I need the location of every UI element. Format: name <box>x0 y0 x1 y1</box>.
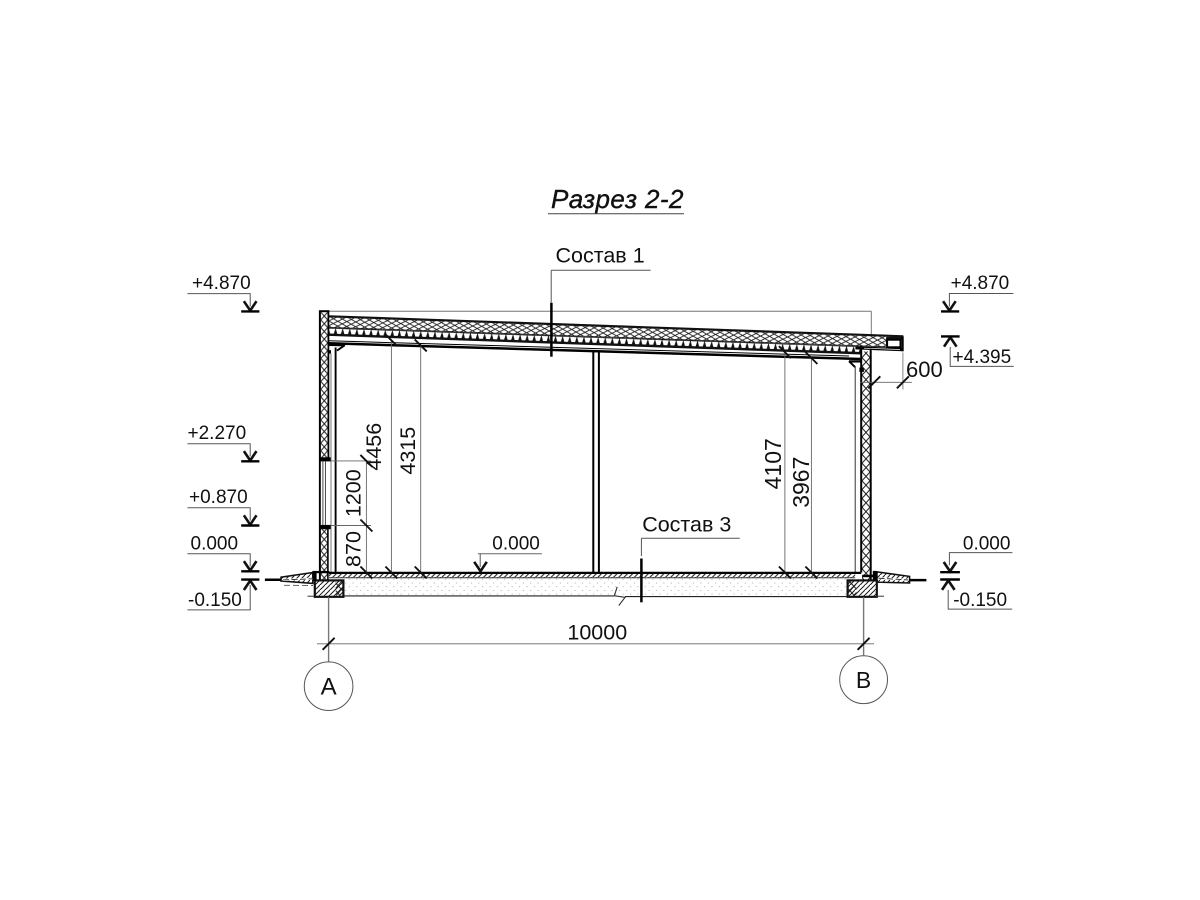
svg-text:Разрез 2-2: Разрез 2-2 <box>551 184 684 214</box>
svg-text:Состав 1: Состав 1 <box>556 244 645 268</box>
svg-text:1200: 1200 <box>341 469 365 517</box>
svg-text:+4.870: +4.870 <box>192 273 251 294</box>
svg-text:+4.395: +4.395 <box>953 347 1012 368</box>
svg-text:600: 600 <box>906 357 943 382</box>
svg-text:В: В <box>856 667 871 693</box>
svg-text:4456: 4456 <box>362 423 386 471</box>
svg-text:+0.870: +0.870 <box>189 487 248 508</box>
svg-text:870: 870 <box>341 531 365 567</box>
svg-text:4315: 4315 <box>396 427 420 475</box>
svg-text:-0.150: -0.150 <box>188 590 242 611</box>
svg-text:А: А <box>321 674 337 701</box>
svg-text:+4.870: +4.870 <box>951 273 1010 294</box>
svg-text:0.000: 0.000 <box>963 533 1011 554</box>
svg-text:+2.270: +2.270 <box>188 423 247 444</box>
svg-text:3967: 3967 <box>788 457 814 508</box>
svg-text:-0.150: -0.150 <box>953 590 1007 611</box>
svg-text:0.000: 0.000 <box>492 533 540 554</box>
svg-text:10000: 10000 <box>567 620 627 644</box>
svg-text:0.000: 0.000 <box>191 533 239 554</box>
svg-text:Состав 3: Состав 3 <box>642 513 731 537</box>
svg-text:4107: 4107 <box>760 438 786 489</box>
